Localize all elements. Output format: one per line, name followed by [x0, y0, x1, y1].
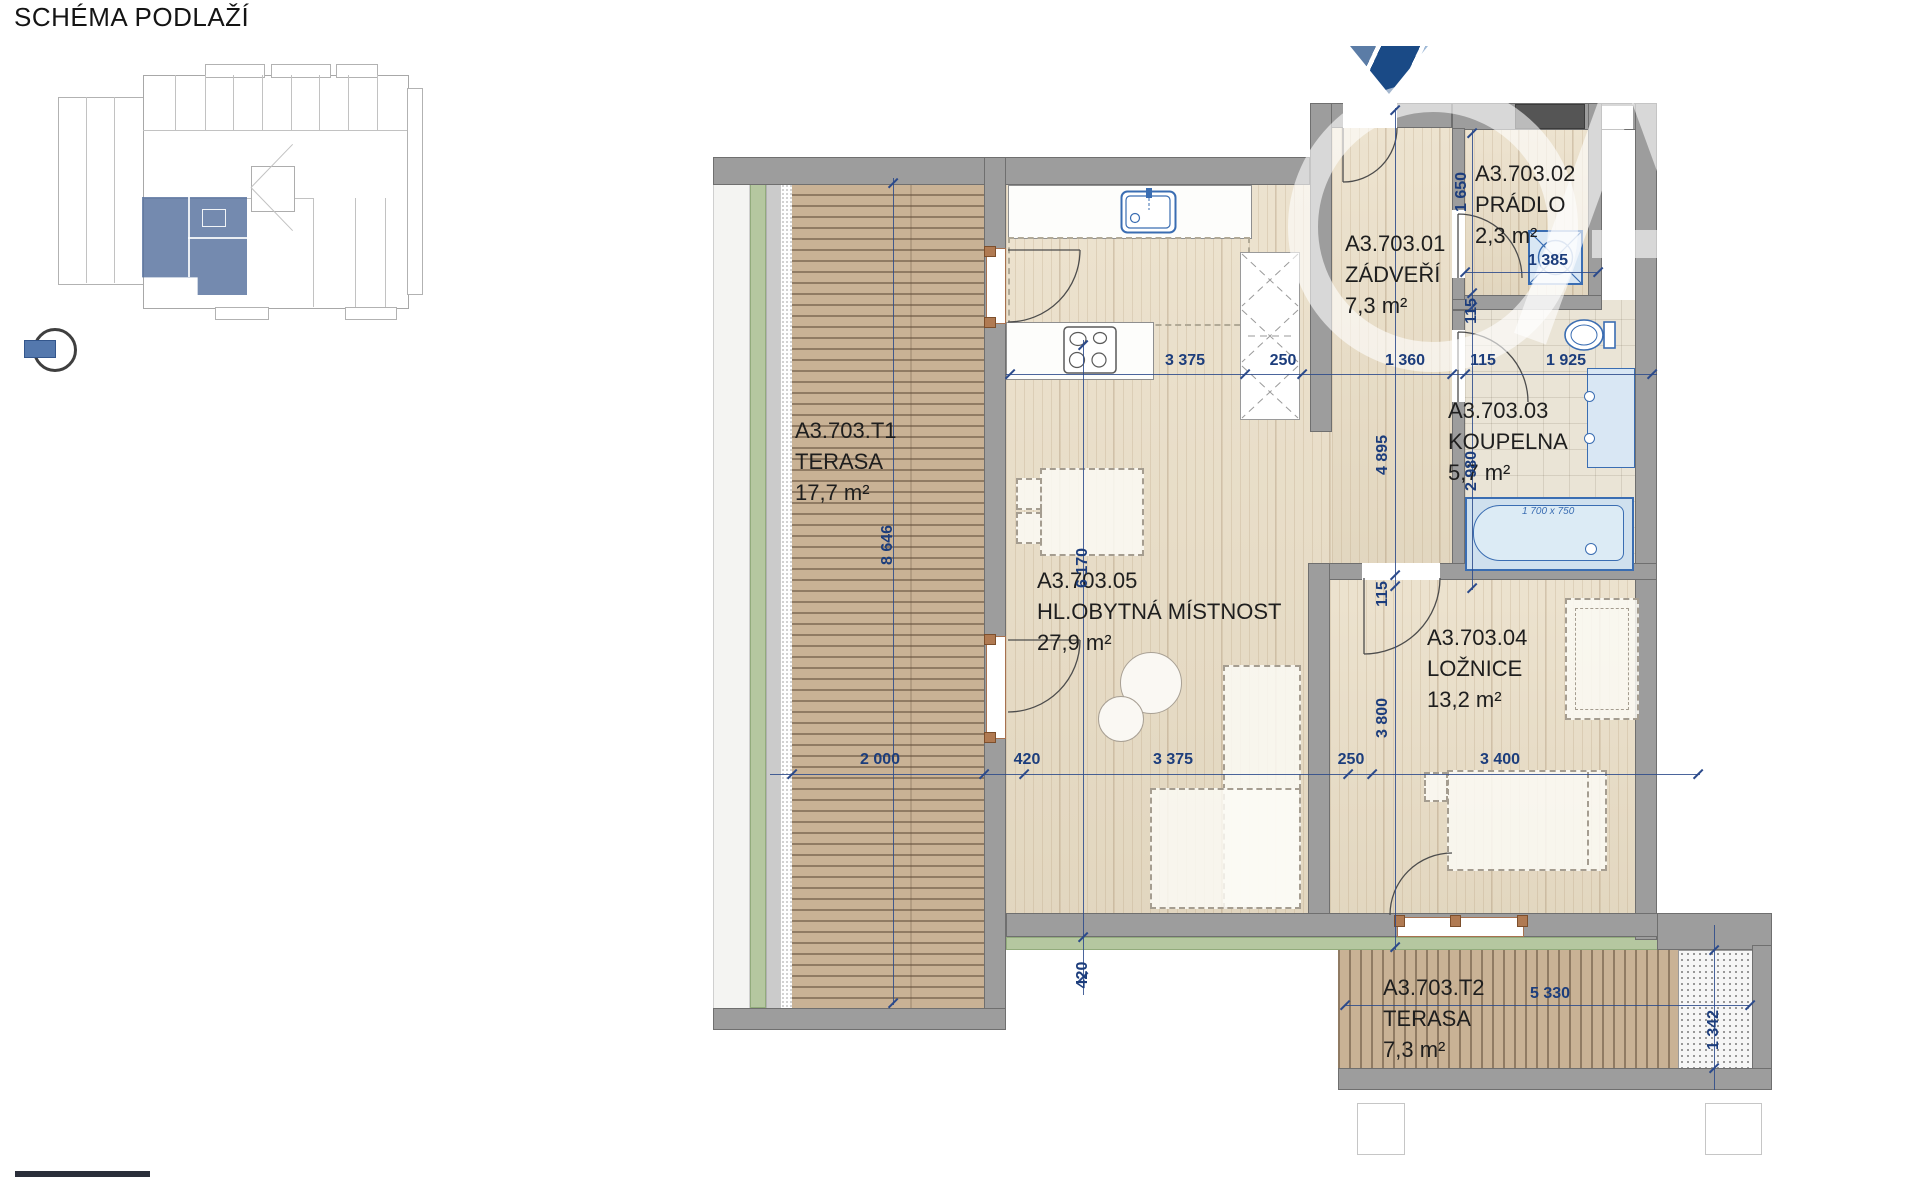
dimension-label: 420 [1074, 962, 1092, 989]
dimension-label: 3 400 [1480, 751, 1520, 769]
dimension-label: 420 [1014, 751, 1041, 769]
room-label-A3.703.04: A3.703.04LOŽNICE13,2 m² [1427, 622, 1527, 715]
dimension-label: 2 980 [1463, 451, 1481, 491]
dimension-label: 1 342 [1705, 1010, 1723, 1050]
dimension-label: 115 [1374, 581, 1392, 607]
room-label-A3.703.T1: A3.703.T1TERASA17,7 m² [795, 415, 897, 508]
dimension-line [770, 774, 1700, 775]
dimension-label: 2 000 [860, 751, 900, 769]
dimension-line [1006, 374, 1657, 375]
dimension-label: 5 330 [1530, 985, 1570, 1003]
dimension-label: 115 [1463, 298, 1481, 324]
dimension-label: 6 170 [1074, 548, 1092, 588]
room-label-A3.703.02: A3.703.02PRÁDLO2,3 m² [1475, 158, 1575, 251]
room-label-A3.703.T2: A3.703.T2TERASA7,3 m² [1383, 972, 1485, 1065]
dimension-label: 3 375 [1165, 352, 1205, 370]
dimension-line [1083, 340, 1084, 995]
dimension-label: 250 [1270, 352, 1297, 370]
dimension-label: 1 925 [1546, 352, 1586, 370]
floorplan-page: { "title": "SCHÉMA PODLAŽÍ", "unit_code"… [0, 0, 1920, 1177]
dimension-label: 3 375 [1153, 751, 1193, 769]
dimension-label: 250 [1338, 751, 1365, 769]
dimension-label: 8 646 [879, 525, 897, 565]
dimension-line [1465, 272, 1598, 273]
dimension-label: 3 800 [1374, 698, 1392, 738]
dimension-label: 1 360 [1385, 352, 1425, 370]
dimension-label: 1 385 [1528, 252, 1568, 270]
door-swings-layer [0, 0, 1920, 1177]
dimension-line [893, 178, 894, 1005]
dimension-label: 4 895 [1374, 435, 1392, 475]
room-label-A3.703.01: A3.703.01ZÁDVEŘÍ7,3 m² [1345, 228, 1445, 321]
dimension-label: 1 650 [1453, 172, 1471, 212]
dimension-label: 115 [1470, 352, 1496, 370]
